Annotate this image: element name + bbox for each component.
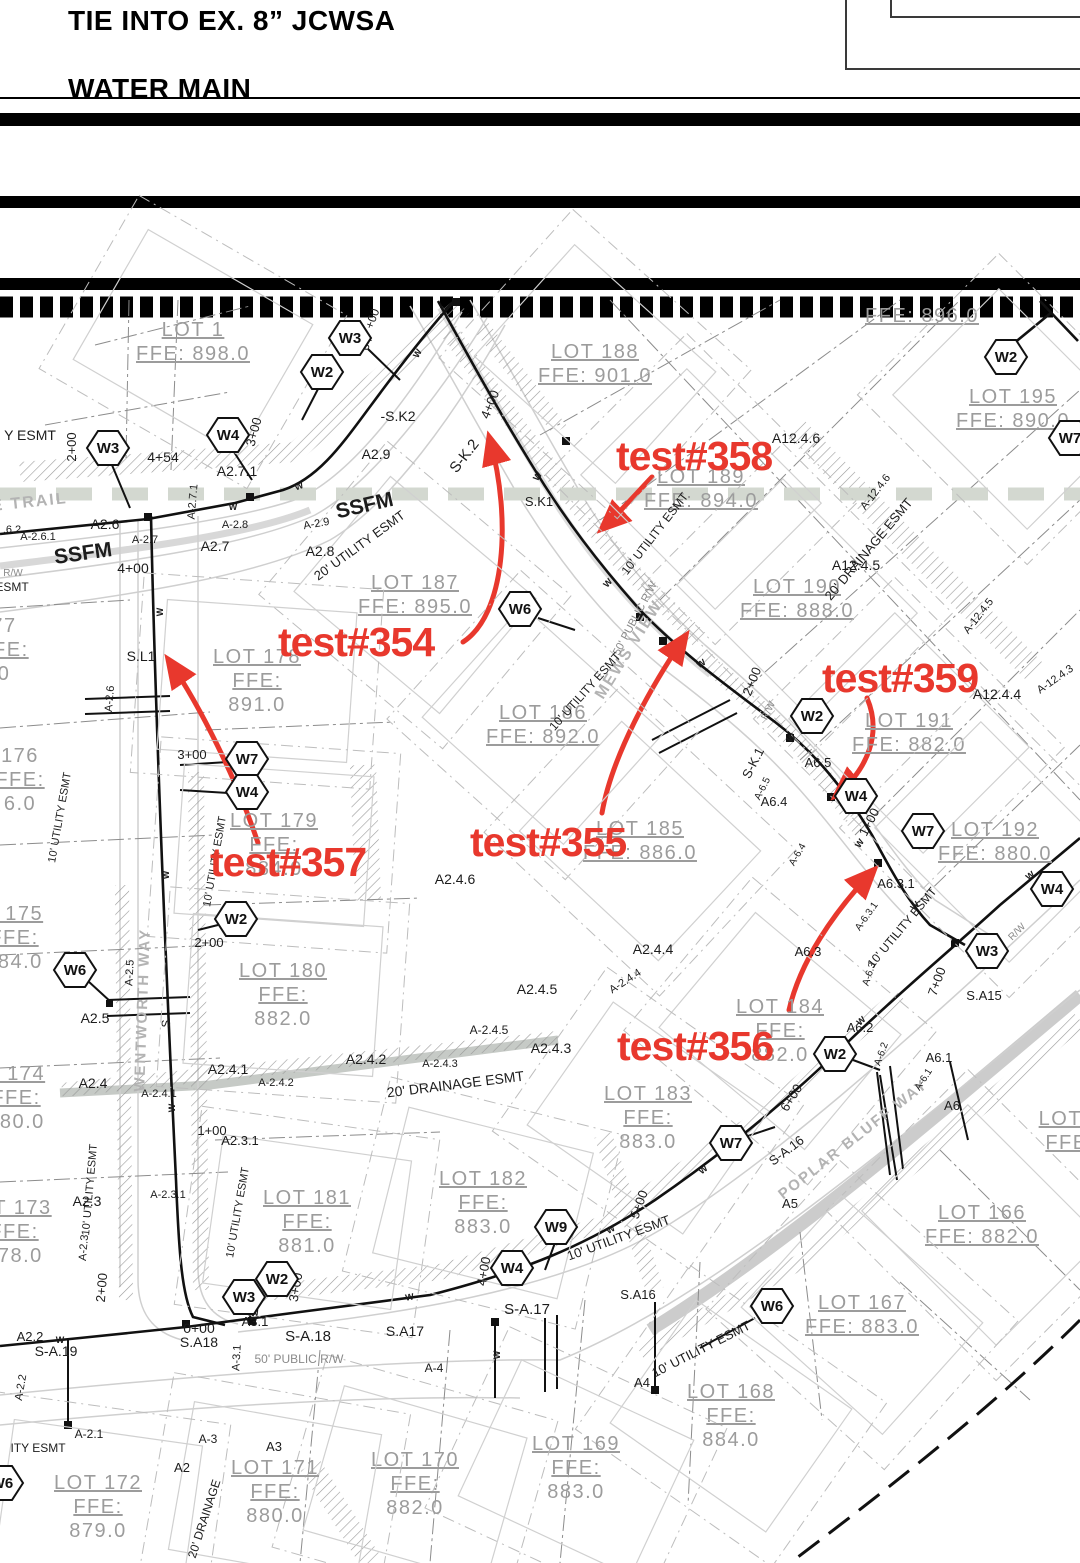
hex-label-W6: W6 <box>0 1475 13 1492</box>
lot-label: 0 <box>0 663 10 685</box>
callout-label--6-2: .6.2 <box>3 524 21 536</box>
callout-label-A6-3-1: A6.3.1 <box>877 876 915 891</box>
lot-label: LOT 195 <box>969 386 1057 408</box>
lot-label: FFE: <box>282 1211 331 1233</box>
callout-label-S-K-2: S-K.2 <box>446 436 482 476</box>
lot-label: 884.0 <box>702 1429 760 1451</box>
lot-label: LOT 182 <box>439 1168 527 1190</box>
lot-label: LOT 167 <box>818 1292 906 1314</box>
hex-label-W9: W9 <box>545 1219 568 1236</box>
lot-label: 882.0 <box>386 1497 444 1519</box>
callout-label-A-2-4-2: A-2.4.2 <box>258 1077 293 1089</box>
lot-label: FFE: <box>551 1457 600 1479</box>
lot-label: FFE: 901.0 <box>538 365 652 387</box>
callout-label-Y-ESMT: Y ESMT <box>4 427 56 443</box>
callout-label-S-A15: S.A15 <box>966 988 1001 1003</box>
callout-label-A2-4-5: A2.4.5 <box>517 981 558 997</box>
hex-label-W7: W7 <box>912 823 935 840</box>
callout-label-A2-9: A2.9 <box>362 446 391 462</box>
hex-label-W2: W2 <box>995 349 1018 366</box>
callout-label-10-UTILITY-ESMT: 10' UTILITY ESMT <box>46 771 74 864</box>
lot-label: FFE: <box>0 1087 41 1109</box>
callout-label-A2-4-1: A2.4.1 <box>208 1061 249 1077</box>
callout-label-A-2-1: A-2.1 <box>75 1427 104 1441</box>
callout-label-A-2-6: A-2.6 <box>103 685 117 712</box>
callout-label-A2-4: A2.4 <box>79 1075 108 1091</box>
annotation-arrow-356 <box>789 872 872 1010</box>
annotation-test-357: test#357 <box>210 839 366 885</box>
lot-label: 884.0 <box>0 951 43 973</box>
lot-label: FFE: 888.0 <box>740 600 854 622</box>
callout-label-A2-4-6: A2.4.6 <box>435 871 476 887</box>
callout-label-A-2-8: A-2.8 <box>222 519 248 531</box>
callout-label-S-A-17: S-A.17 <box>504 1301 550 1318</box>
annotation-test-359: test#359 <box>822 655 978 701</box>
lot-label: FFE: <box>458 1192 507 1214</box>
annotation-test-358: test#358 <box>616 433 772 479</box>
callout-label-R-W: R/W <box>3 568 23 579</box>
lot-label: 879.0 <box>69 1520 127 1542</box>
callout-label-2-00: 2+00 <box>64 432 79 461</box>
hex-label-W4: W4 <box>1041 881 1064 898</box>
callout-label-S-K-1: S-K.1 <box>739 745 767 781</box>
hex-label-W7: W7 <box>236 751 259 768</box>
callout-label-S-A-19: S-A.19 <box>35 1343 78 1359</box>
lot-label: LOT 171 <box>231 1457 319 1479</box>
callout-label-A-6-2: A-6.2 <box>872 1041 891 1068</box>
lot-label: FFE: <box>1045 1132 1080 1154</box>
lot-label: LOT 181 <box>263 1187 351 1209</box>
hex-label-W3: W3 <box>339 330 362 347</box>
callout-label-A2: A2 <box>174 1460 190 1475</box>
lot-label: FFE: 890.0 <box>956 410 1070 432</box>
lot-label: 880.0 <box>246 1505 304 1527</box>
lot-label: FFE: <box>0 769 45 791</box>
lot-label: FFE: 898.0 <box>136 343 250 365</box>
pipe-tick-label: W <box>155 607 165 616</box>
lot-label: OT 173 <box>0 1197 52 1219</box>
pipe-tick-label: W <box>492 1350 502 1359</box>
callout-label-A6: A6 <box>944 1098 960 1113</box>
callout-label-A2-2: A2.2 <box>17 1329 44 1344</box>
lot-label: 880.0 <box>0 1111 45 1133</box>
callout-label-2-00: 2+00 <box>93 1272 110 1302</box>
lot-label: FFE: 892.0 <box>486 726 600 748</box>
annotation-test-354: test#354 <box>278 619 435 665</box>
lot-label: 883.0 <box>547 1481 605 1503</box>
lot-label: FFE: <box>0 639 29 661</box>
callout-label-A2-4-3: A2.4.3 <box>531 1040 572 1056</box>
lot-label: LOT 172 <box>54 1472 142 1494</box>
callout-label-20-DRAINAGE-ESMT: 20' DRAINAGE ESMT <box>386 1068 525 1101</box>
callout-label-ITY-ESMT: ITY ESMT <box>10 1441 66 1455</box>
lot-label: FFE: <box>623 1107 672 1129</box>
lot-label: LOT 168 <box>687 1381 775 1403</box>
pipe-tick-label: W <box>853 837 866 850</box>
callout-label-A-3: A-3 <box>199 1432 218 1446</box>
callout-label-A6-1: A6.1 <box>926 1050 953 1065</box>
callout-label-A2-5: A2.5 <box>81 1010 110 1026</box>
hex-label-W6: W6 <box>509 601 532 618</box>
lot-label: FFE: <box>0 927 39 949</box>
lot-label: LOT 179 <box>230 810 318 832</box>
callout-label-A-2-4-5: A-2.4.5 <box>470 1023 509 1037</box>
lot-label: 891.0 <box>228 694 286 716</box>
callout-label-A5: A5 <box>782 1196 798 1211</box>
lot-label: LOT 170 <box>371 1449 459 1471</box>
lot-pad-outline <box>789 613 1029 853</box>
callout-label-A12-4-6: A12.4.6 <box>772 430 820 446</box>
callout-label-A-2-3: A-2.3 <box>77 1234 91 1261</box>
callout-label-A-4: A-4 <box>425 1361 444 1375</box>
hex-label-W3: W3 <box>976 943 999 960</box>
hex-label-W4: W4 <box>845 788 868 805</box>
callout-label-WENTWORTH-WAY: WENTWORTH WAY <box>131 928 154 1092</box>
callout-label--S-K2: -S.K2 <box>380 408 415 424</box>
callout-label-A4: A4 <box>634 1375 650 1390</box>
lot-label: 878.0 <box>0 1245 43 1267</box>
lot-label: FFE: 882.0 <box>852 734 966 756</box>
callout-label-A-3-1: A-3.1 <box>230 1344 243 1371</box>
hex-label-W4: W4 <box>501 1260 524 1277</box>
callout-label-10-UTILITY-ESMT: 10' UTILITY ESMT <box>864 884 939 970</box>
lot-label: LOT 187 <box>371 572 459 594</box>
pipe-tick-label: W <box>1024 869 1037 882</box>
callout-label-A-6-3: A-6.3 <box>861 961 879 988</box>
pipe-tick-label: W <box>56 1335 65 1345</box>
lot-label: T 174 <box>0 1063 45 1085</box>
callout-label-S-A-18: S-A.18 <box>285 1328 331 1345</box>
callout-label-R-W: R/W <box>1006 921 1028 943</box>
callout-label-A-6-3-1: A-6.3.1 <box>853 900 881 933</box>
lot-label: 883.0 <box>619 1131 677 1153</box>
pipe-tick-label: W <box>167 1103 177 1112</box>
callout-label-4-54: 4+54 <box>147 449 179 465</box>
callout-label-3-00: 3+00 <box>177 747 206 762</box>
callout-label-S-A18: S.A18 <box>180 1334 218 1350</box>
lot-label: FFE: <box>73 1496 122 1518</box>
lot-label: FFE: <box>258 984 307 1006</box>
callout-label-A-12-4-3: A-12.4.3 <box>1035 663 1076 697</box>
lot-label: FFE: 880.0 <box>938 843 1052 865</box>
lot-label: FFE: <box>390 1473 439 1495</box>
callout-label-10-UTILITY-ESMT: 10' UTILITY ESMT <box>224 1166 252 1259</box>
hex-label-W2: W2 <box>225 911 248 928</box>
site-plan-drawing: LOT 1FFE: 898.0LOT 188FFE: 901.0FFE: 896… <box>0 0 1080 1563</box>
callout-label-A-2-6-1: A-2.6.1 <box>20 531 55 543</box>
callout-label-A3: A3 <box>266 1439 282 1454</box>
callout-label-A6-5: A6.5 <box>805 755 832 770</box>
plan-sheet: { "header": {"line1":"TIE INTO EX. 8\u20… <box>0 0 1080 1563</box>
hex-label-W2: W2 <box>824 1046 847 1063</box>
callout-label-A-2-4-3: A-2.4.3 <box>422 1058 457 1070</box>
hex-label-W6: W6 <box>761 1298 784 1315</box>
callout-label-4-00: 4+00 <box>117 560 149 576</box>
callout-label-A-2-7: A-2.7 <box>132 534 158 546</box>
lot-label: 882.0 <box>254 1008 312 1030</box>
hex-label-W6: W6 <box>64 962 87 979</box>
hex-label-W4: W4 <box>236 784 259 801</box>
lot-label: LOT 1 <box>162 319 225 341</box>
callout-label-A2-4-4: A2.4.4 <box>633 941 674 957</box>
callout-label-A-2-3-1: A-2.3.1 <box>150 1189 185 1201</box>
callout-label-A-2-7-1: A-2.7.1 <box>185 484 200 520</box>
pipe-tick-label: W <box>161 870 171 879</box>
lot-label: LOT 1 <box>1039 1108 1080 1130</box>
callout-label-S-K1: S.K1 <box>525 494 553 509</box>
lot-label: FFE: <box>0 1221 39 1243</box>
callout-label-A2-3: A2.3 <box>73 1193 102 1209</box>
lot-label: FFE: <box>232 670 281 692</box>
lot-label: LOT 184 <box>736 996 824 1018</box>
hex-label-W2: W2 <box>311 364 334 381</box>
callout-label-S-L1: S.L1 <box>127 648 156 664</box>
lot-label: FFE: 894.0 <box>644 490 758 512</box>
callout-label-A2-7: A2.7 <box>201 538 230 554</box>
lot-label: FFE: 895.0 <box>358 596 472 618</box>
lot-label: 77 <box>0 615 17 637</box>
callout-label-A12-4-4: A12.4.4 <box>973 686 1021 702</box>
lot-label: 883.0 <box>454 1216 512 1238</box>
lot-label: 881.0 <box>278 1235 336 1257</box>
phase-boundary-dashed <box>790 1320 1080 1563</box>
callout-label-S-A17: S.A17 <box>386 1323 424 1339</box>
lot-label: LOT 183 <box>604 1083 692 1105</box>
callout-label-2-00: 2+00 <box>739 665 764 698</box>
lot-label: FFE: <box>706 1405 755 1427</box>
lot-label: LOT 188 <box>551 341 639 363</box>
hex-label-W7: W7 <box>1059 430 1080 447</box>
hex-label-W4: W4 <box>217 427 240 444</box>
pipe-tick-label: W <box>229 502 238 512</box>
lot-label: LOT 169 <box>532 1433 620 1455</box>
callout-label-S-A16: S.A16 <box>620 1287 655 1302</box>
callout-label-A12-4-5: A12.4.5 <box>832 557 880 573</box>
lot-label: FFE: 882.0 <box>925 1226 1039 1248</box>
callout-label-2-00: 2+00 <box>194 935 223 950</box>
hex-label-W3: W3 <box>233 1289 256 1306</box>
callout-label-A6-3: A6.3 <box>795 944 822 959</box>
callout-label-ESMT: ESMT <box>0 580 29 594</box>
lot-label: FFE: <box>250 1481 299 1503</box>
lot-pad-outline <box>73 230 313 455</box>
callout-label-20-DRAINAGE: 20' DRAINAGE <box>185 1478 224 1560</box>
callout-label-A2-4-2: A2.4.2 <box>346 1051 387 1067</box>
callout-label-A2-6: A2.6 <box>91 516 120 532</box>
callout-label-A2-7-1: A2.7.1 <box>217 463 258 479</box>
callout-label-S: S <box>159 1019 174 1028</box>
lot-label: LOT 166 <box>938 1202 1026 1224</box>
annotation-test-356: test#356 <box>617 1023 773 1069</box>
callout-label-A6-4: A6.4 <box>761 794 788 809</box>
lot-label: FFE: 883.0 <box>805 1316 919 1338</box>
annotation-test-355: test#355 <box>470 819 626 865</box>
callout-label-50-PUBLIC-R-W: 50' PUBLIC R/W <box>255 1352 345 1366</box>
callout-label-A-2-2: A-2.2 <box>13 1373 29 1401</box>
hex-label-W7: W7 <box>720 1135 743 1152</box>
lot-label: LOT 180 <box>239 960 327 982</box>
lot-label: 6.0 <box>4 793 36 815</box>
hex-label-W2: W2 <box>266 1271 289 1288</box>
callout-label-10-UTILITY-ESMT: 10' UTILITY ESMT <box>80 1143 100 1236</box>
lot-label: LOT 191 <box>865 710 953 732</box>
lot-label: T 175 <box>0 903 43 925</box>
lot-label: LOT 192 <box>951 819 1039 841</box>
lot-label: 176 <box>1 745 39 767</box>
callout-label-A-6-4: A-6.4 <box>787 841 809 868</box>
hex-label-W2: W2 <box>801 708 824 725</box>
lot-label: FFE: 896.0 <box>865 305 979 327</box>
callout-label-A2-3-1: A2.3.1 <box>221 1133 259 1148</box>
pipe-tick-label: W <box>404 1291 415 1302</box>
hex-label-W3: W3 <box>97 440 120 457</box>
